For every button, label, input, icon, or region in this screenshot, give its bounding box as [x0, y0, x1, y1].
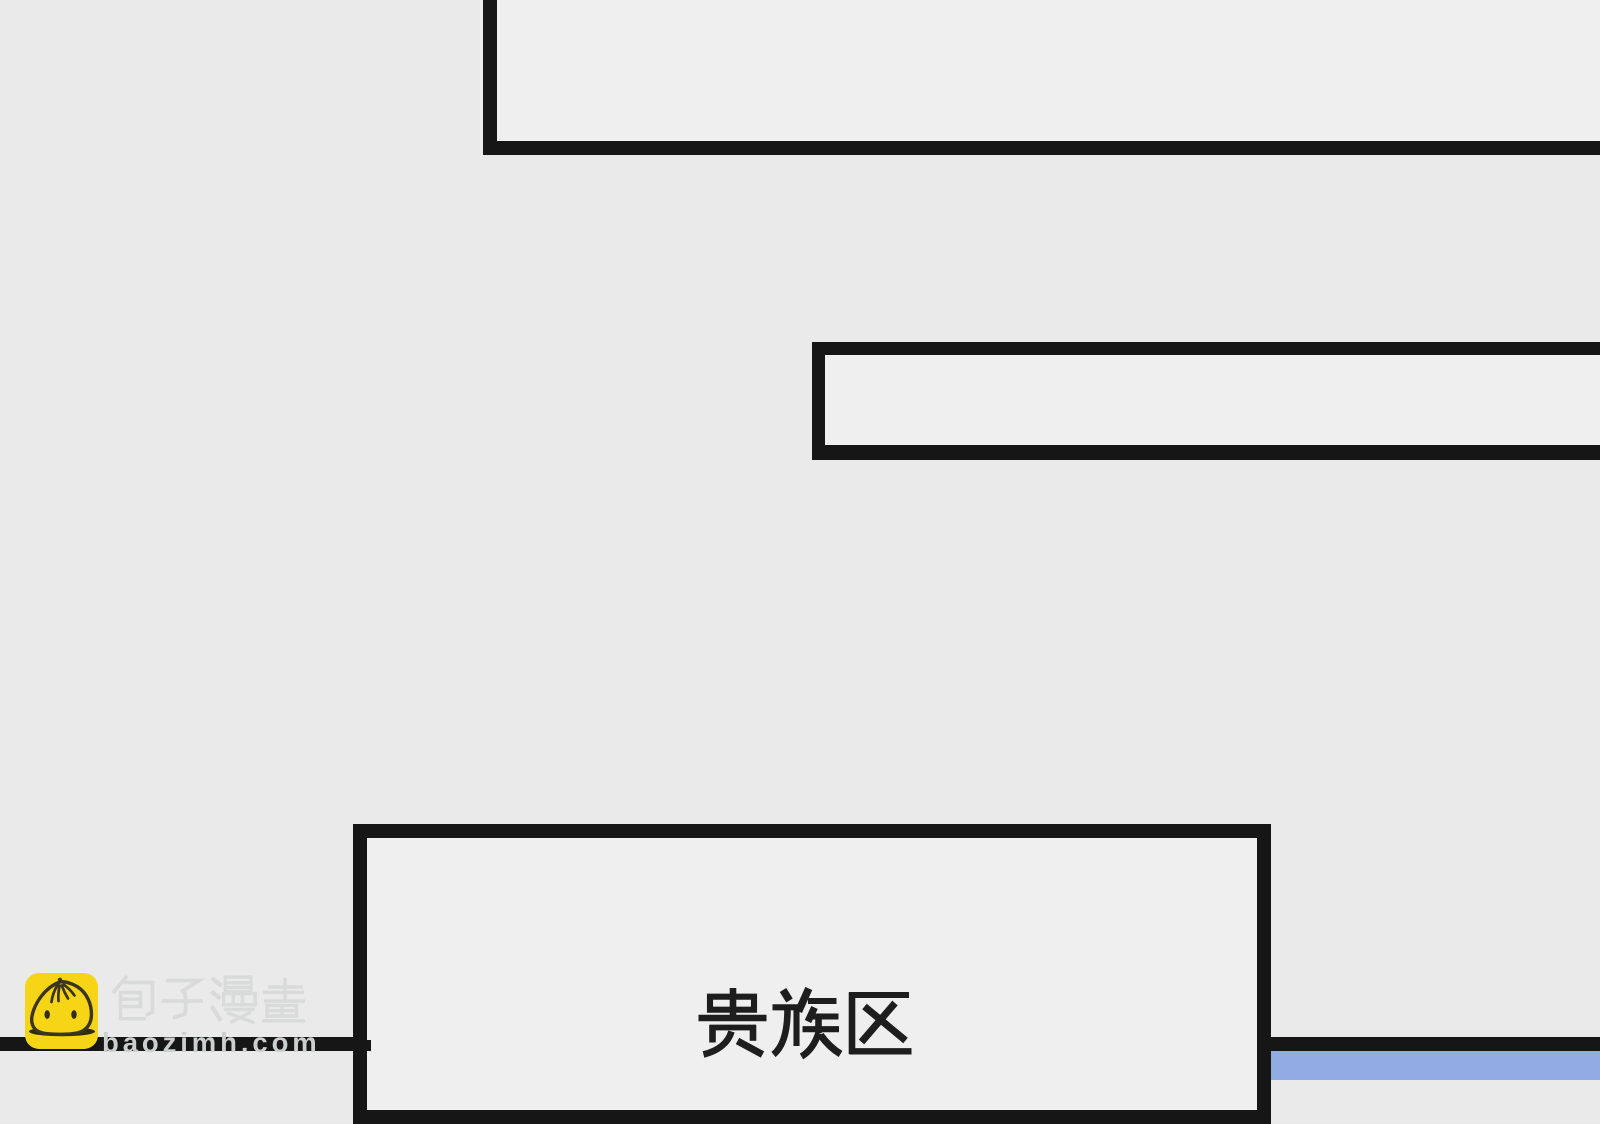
svg-text:baozimh.com: baozimh.com — [102, 1027, 321, 1058]
